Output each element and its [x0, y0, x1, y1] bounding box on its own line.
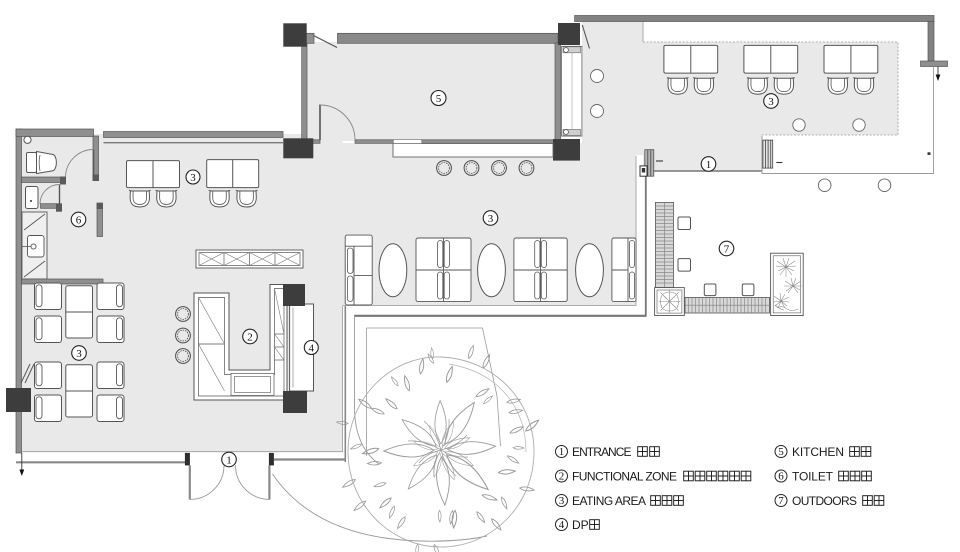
svg-text:4: 4 — [559, 519, 565, 531]
svg-text:KITCHEN: KITCHEN — [792, 445, 844, 459]
svg-text:5: 5 — [778, 446, 784, 458]
svg-text:ENTRANCE: ENTRANCE — [572, 445, 632, 459]
svg-text:OUTDOORS: OUTDOORS — [792, 494, 857, 508]
svg-text:2: 2 — [559, 471, 565, 483]
svg-text:3: 3 — [190, 172, 196, 184]
svg-text:EATING AREA: EATING AREA — [572, 494, 646, 508]
svg-text:1: 1 — [559, 446, 565, 458]
svg-text:FUNCTIONAL ZONE: FUNCTIONAL ZONE — [572, 470, 677, 484]
svg-text:7: 7 — [778, 495, 784, 507]
svg-text:4: 4 — [309, 342, 315, 354]
svg-text:3: 3 — [76, 348, 82, 360]
svg-text:6: 6 — [778, 471, 784, 483]
svg-text:TOILET: TOILET — [792, 470, 834, 484]
svg-text:1: 1 — [706, 159, 712, 171]
svg-text:DP: DP — [572, 518, 589, 532]
svg-text:3: 3 — [768, 96, 774, 108]
svg-text:6: 6 — [76, 214, 82, 226]
svg-text:7: 7 — [724, 243, 730, 255]
svg-text:3: 3 — [488, 213, 494, 225]
svg-text:3: 3 — [559, 495, 565, 507]
svg-text:1: 1 — [226, 454, 232, 466]
svg-text:2: 2 — [247, 331, 253, 343]
svg-text:5: 5 — [436, 93, 442, 105]
